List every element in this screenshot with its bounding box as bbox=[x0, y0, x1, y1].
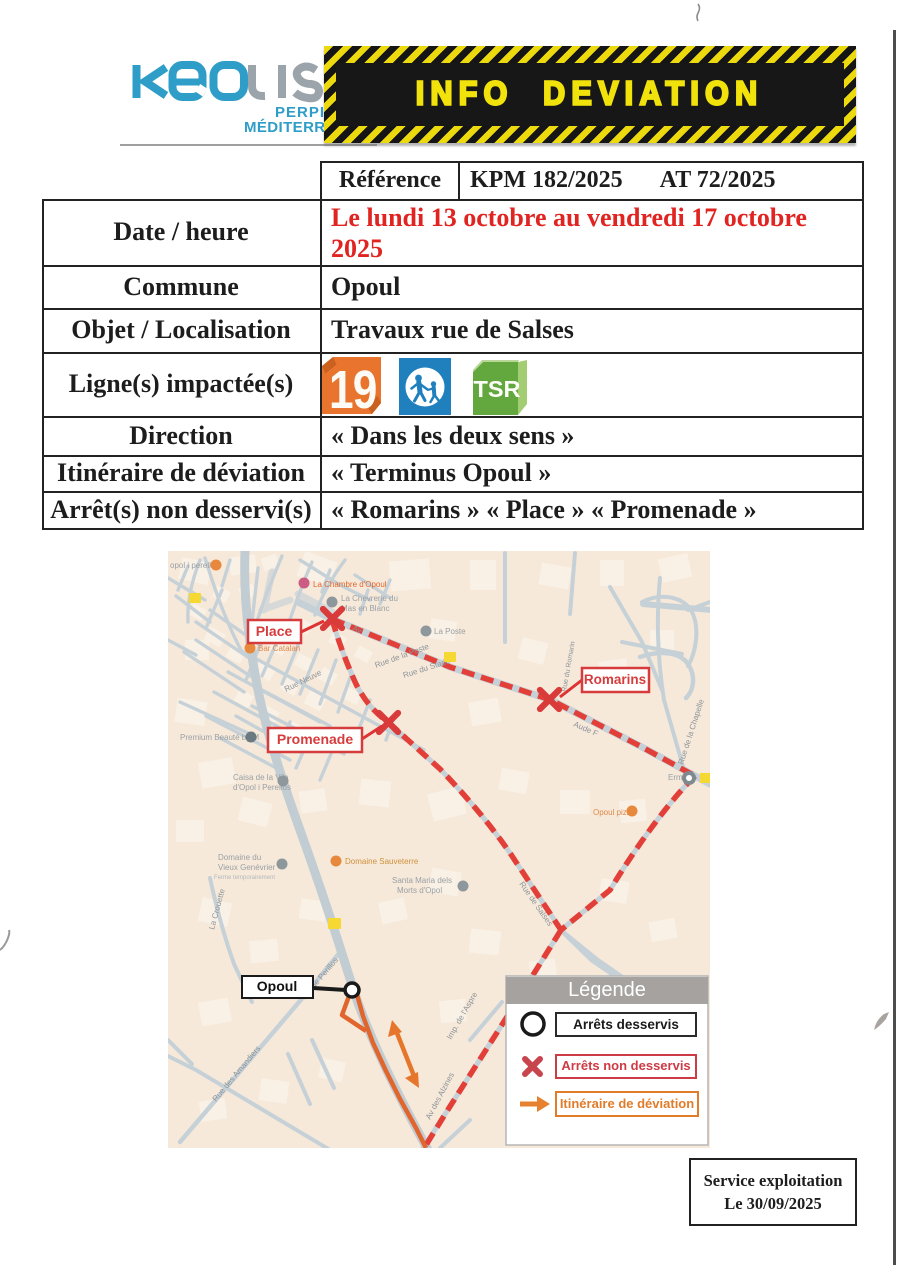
svg-text:La Chevrerie du: La Chevrerie du bbox=[341, 594, 398, 603]
svg-text:Promenade: Promenade bbox=[277, 731, 353, 747]
svg-text:Légende: Légende bbox=[568, 979, 646, 1001]
svg-text:Itinéraire de déviation: Itinéraire de déviation bbox=[560, 1096, 694, 1111]
svg-text:La Poste: La Poste bbox=[434, 627, 466, 636]
svg-text:19: 19 bbox=[329, 360, 377, 414]
svg-text:La Chambre d'Opoul: La Chambre d'Opoul bbox=[313, 580, 387, 589]
svg-text:Arrêts non desservis: Arrêts non desservis bbox=[561, 1058, 690, 1073]
svg-text:Opoul: Opoul bbox=[257, 978, 297, 994]
svg-text:Arrêts desservis: Arrêts desservis bbox=[573, 1017, 679, 1032]
svg-text:Erm: Erm bbox=[668, 773, 683, 782]
svg-text:Domaine du: Domaine du bbox=[218, 853, 261, 862]
svg-text:Santa Maria dels: Santa Maria dels bbox=[392, 876, 452, 885]
svg-text:Morts d'Opol: Morts d'Opol bbox=[397, 886, 442, 895]
svg-text:Domaine Sauveterre: Domaine Sauveterre bbox=[345, 857, 419, 866]
svg-text:Bar Catalan: Bar Catalan bbox=[258, 644, 300, 653]
svg-text:Ferme temporairement: Ferme temporairement bbox=[214, 875, 275, 881]
svg-text:Romarins: Romarins bbox=[584, 672, 646, 687]
svg-text:Vieux Genévrier: Vieux Genévrier bbox=[218, 863, 276, 872]
svg-text:Mas en Blanc: Mas en Blanc bbox=[341, 604, 389, 613]
svg-text:TSR: TSR bbox=[474, 376, 521, 402]
svg-text:Place: Place bbox=[256, 623, 293, 639]
